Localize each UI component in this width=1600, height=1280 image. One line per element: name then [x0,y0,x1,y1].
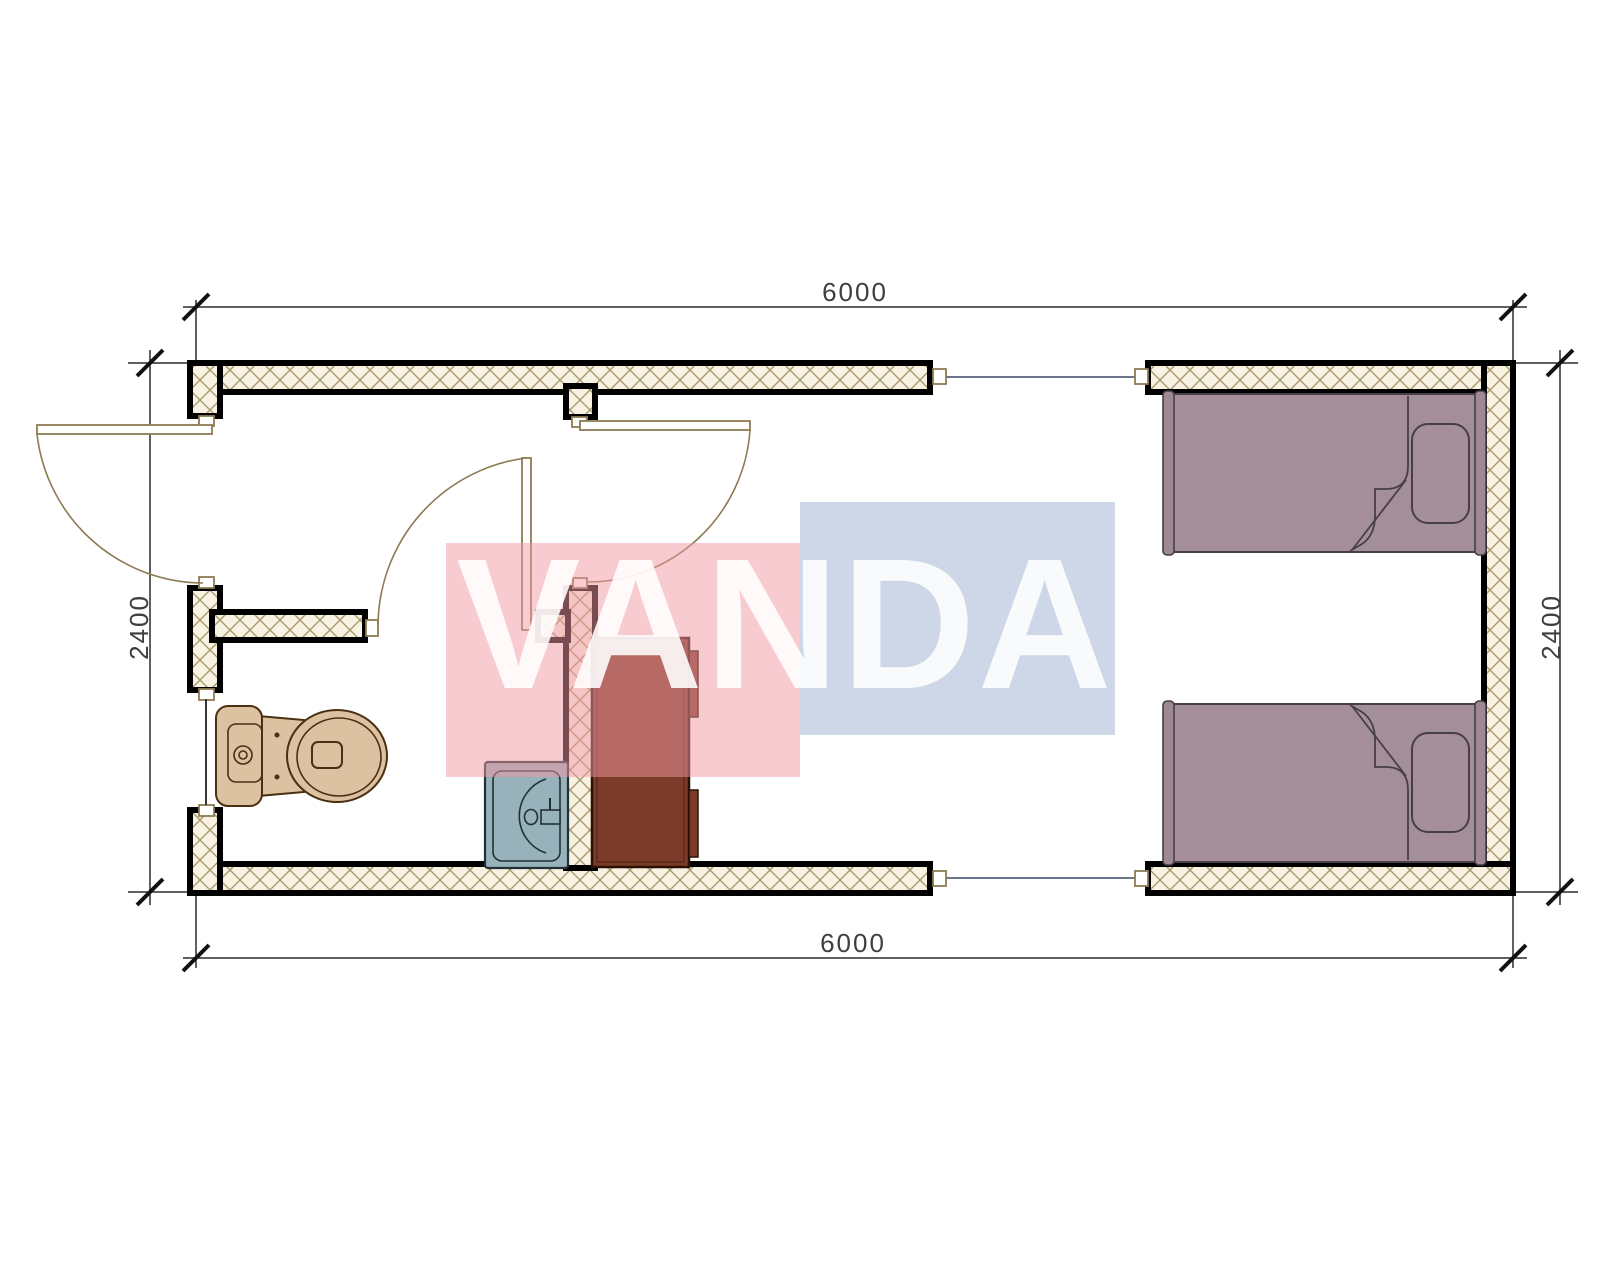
wall-top-left-segment [190,363,930,392]
dimension-bottom: 6000 [183,895,1527,971]
wall-partition-bathroom [212,612,365,640]
cabinet-door-tab [689,790,698,857]
dimension-label-top: 6000 [822,277,888,307]
bed-bottom [1163,701,1486,865]
entry-door [37,425,212,583]
wall-pier-bottom-left [190,810,220,893]
floor-plan-page: 6000 6000 2400 2400 [0,0,1600,1280]
jamb-cap [1135,871,1148,886]
entry-door-swing-arc [37,434,203,583]
bed-footboard [1475,701,1486,865]
dimension-right: 2400 [1513,350,1578,905]
wall-pier-top-left [190,363,220,416]
entry-door-leaf [37,425,212,434]
jamb-cap [366,620,378,636]
bed-headboard [1163,701,1174,865]
bed-pillow [1412,424,1469,523]
dimension-label-left: 2400 [124,594,154,660]
jamb-cap [199,689,214,700]
jamb-cap [1135,369,1148,384]
toilet-seat-hinge [275,733,280,738]
wall-pier-top-middle [566,386,595,417]
dimension-label-bottom: 6000 [820,928,886,958]
bedroom-door-leaf [580,421,750,430]
toilet-drain [312,742,342,768]
bed-pillow [1412,733,1469,832]
watermark-logo-text: VANDA [456,521,1114,728]
wall-top-right-segment [1148,363,1513,392]
bed-headboard [1163,391,1174,555]
dimension-label-right: 2400 [1536,594,1566,660]
dimension-top: 6000 [183,277,1527,363]
sink-faucet-base [541,810,560,824]
jamb-cap [933,369,946,384]
floor-plan-drawing: 6000 6000 2400 2400 [0,0,1600,1280]
jamb-cap [933,871,946,886]
wall-bottom-right-segment [1148,864,1513,893]
toilet [216,706,387,806]
bed-top [1163,391,1486,555]
watermark: VANDA [446,502,1115,777]
bed-footboard [1475,391,1486,555]
jamb-cap [199,805,214,816]
wall-right [1484,363,1513,893]
sink [485,762,568,868]
toilet-seat-hinge [275,775,280,780]
